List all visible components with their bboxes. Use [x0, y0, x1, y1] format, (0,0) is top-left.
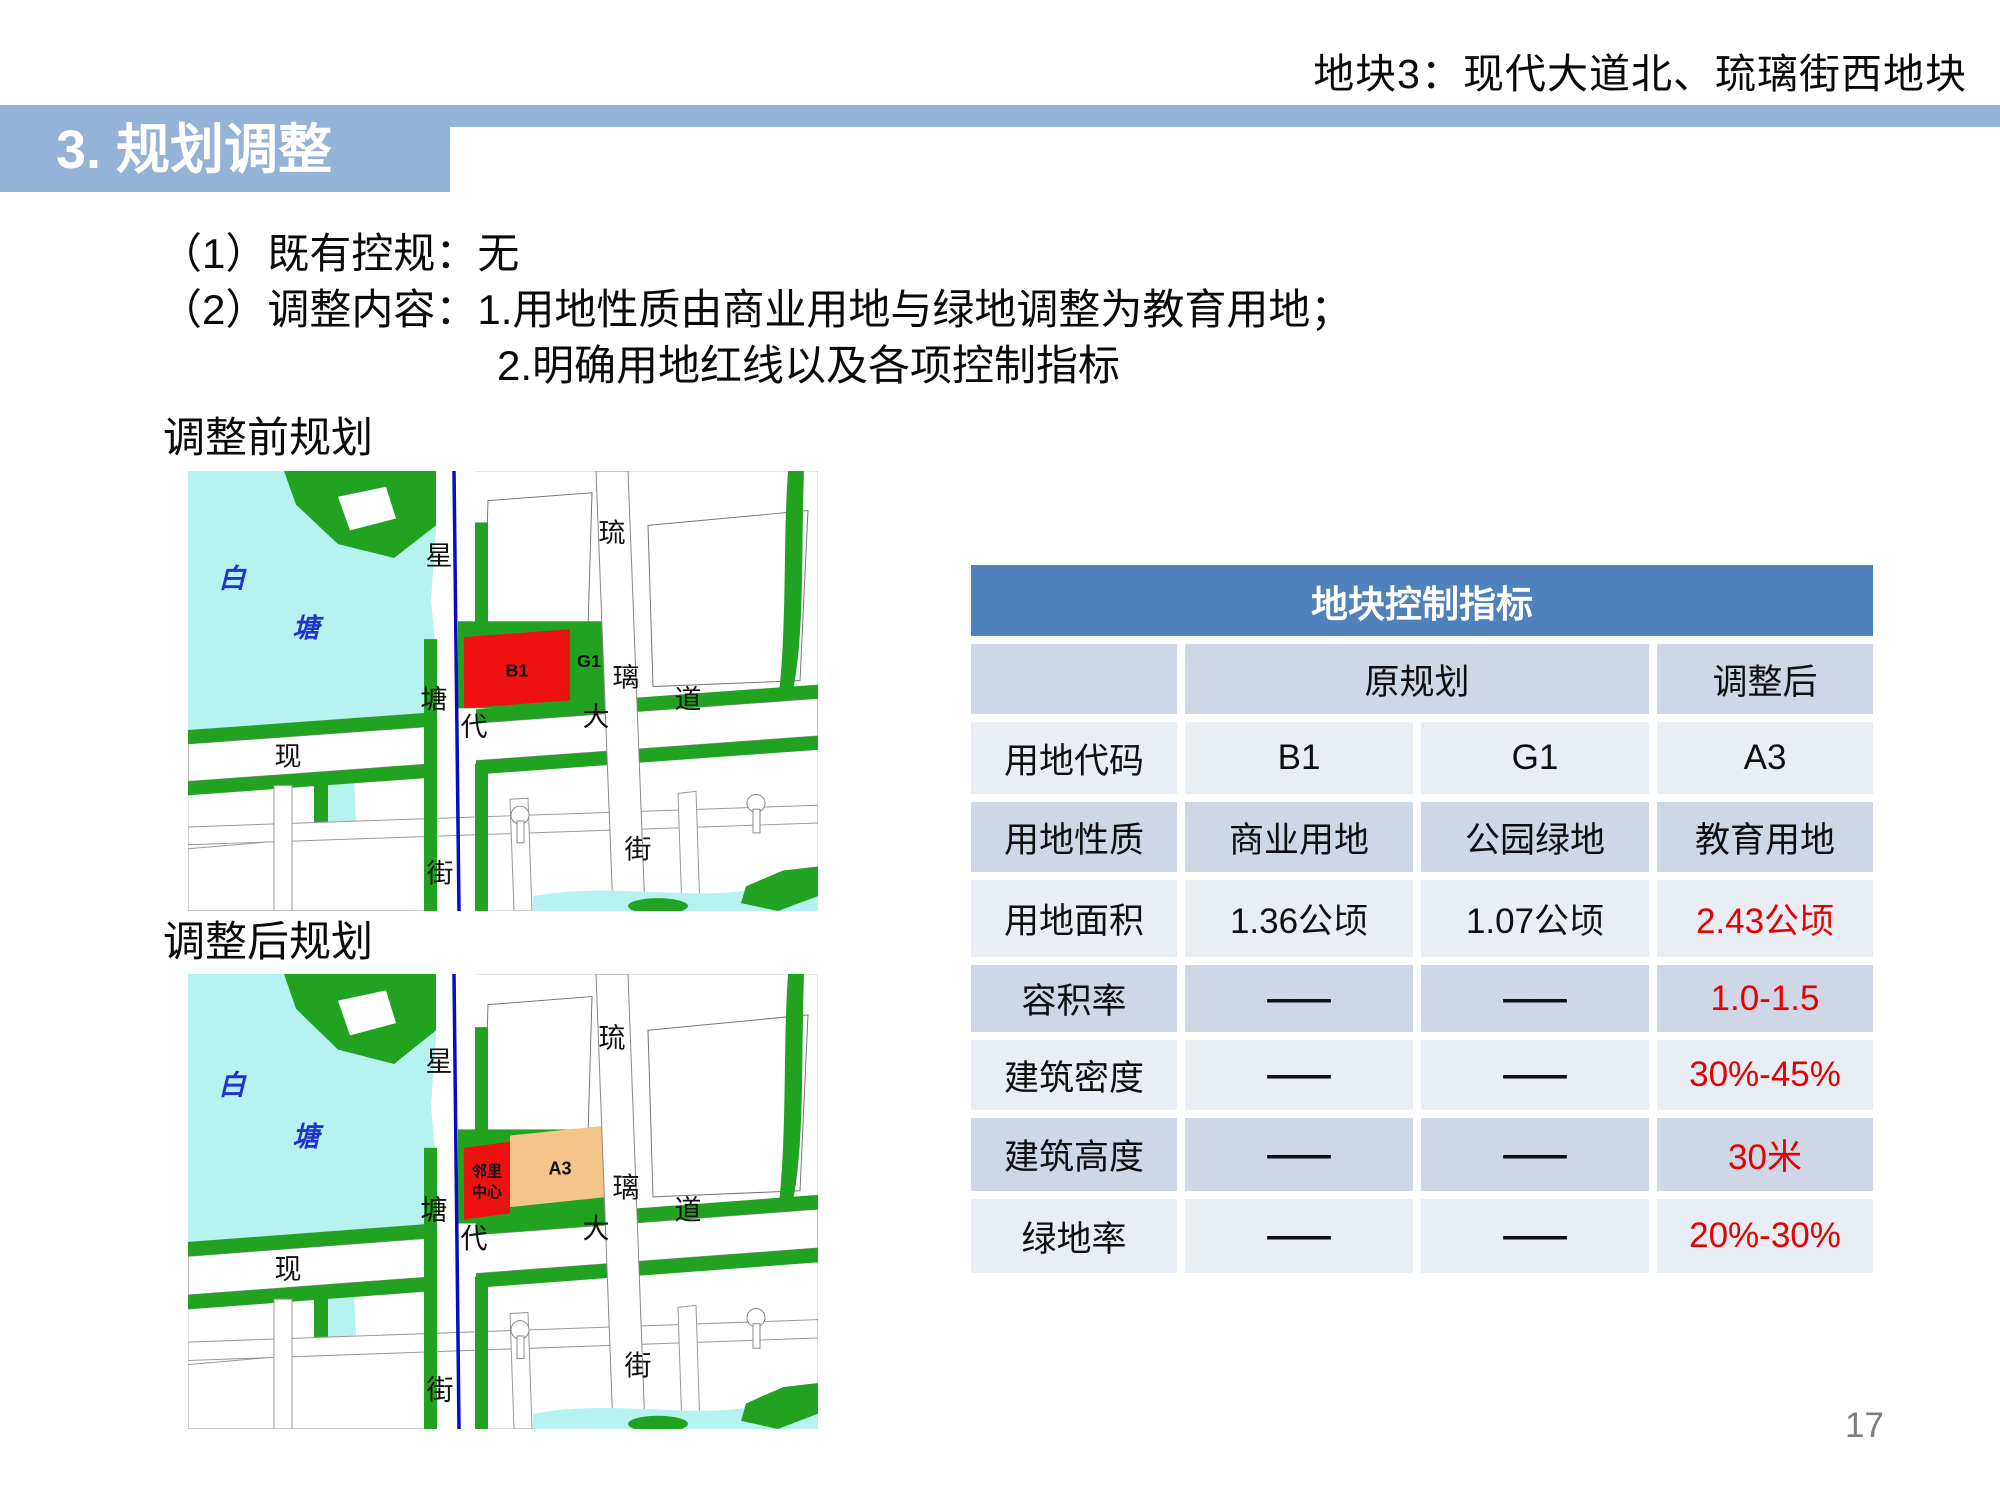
- table-cell: B1: [1185, 722, 1413, 794]
- table-cell: 建筑高度: [971, 1118, 1177, 1191]
- table-cell: 调整后: [1657, 644, 1873, 714]
- culdesac-2-stem: [753, 1324, 760, 1349]
- xiandai-label-3: 大: [583, 702, 610, 732]
- xingtang-green-right-top: [475, 522, 488, 637]
- parcel-b1-label: B1: [506, 661, 529, 681]
- table-cell: G1: [1421, 722, 1649, 794]
- liuli-label-2: 璃: [613, 1172, 640, 1203]
- table-cell: 绿地率: [971, 1199, 1177, 1273]
- xiandai-label-2: 代: [461, 712, 488, 742]
- slide: 地块3：现代大道北、琉璃街西地块 3. 规划调整 （1）既有控规：无 （2）调整…: [0, 0, 2000, 1500]
- control-table: 地块控制指标 原规划调整后用地代码B1G1A3用地性质商业用地公园绿地教育用地用…: [971, 565, 1873, 1281]
- lake-label-1: 白: [219, 1070, 248, 1100]
- table-cell: 公园绿地: [1421, 802, 1649, 872]
- xiandai-label-4: 道: [675, 1194, 702, 1225]
- table-cell: ——: [1185, 1040, 1413, 1110]
- table-cell: 1.36公顷: [1185, 880, 1413, 957]
- parcel-g1-label: G1: [577, 651, 601, 671]
- table-cell: ——: [1421, 1040, 1649, 1110]
- xingtang-label-3: 街: [427, 858, 454, 888]
- table-cell: 1.07公顷: [1421, 880, 1649, 957]
- xiandai-label-4: 道: [675, 684, 702, 714]
- table-row: 容积率————1.0-1.5: [971, 965, 1873, 1032]
- parcel-neighborhood: [464, 1142, 510, 1220]
- table-row: 建筑高度————30米: [971, 1118, 1873, 1191]
- liuli-label-3: 街: [625, 835, 652, 865]
- road-vertical-right: [678, 1305, 700, 1429]
- xingtang-green-right-bottom: [475, 764, 488, 911]
- table-row: 用地面积1.36公顷1.07公顷2.43公顷: [971, 880, 1873, 957]
- xingtang-label-3: 街: [427, 1374, 454, 1405]
- culdesac-1-stem: [517, 1336, 524, 1358]
- table-cell: 1.0-1.5: [1657, 965, 1873, 1032]
- road-vertical-left: [274, 785, 292, 911]
- table-cell: ——: [1185, 1199, 1413, 1273]
- table-cell: 商业用地: [1185, 802, 1413, 872]
- table-cell: 30米: [1657, 1118, 1873, 1191]
- road-vertical-left: [274, 1299, 292, 1429]
- table-cell: [971, 644, 1177, 714]
- table-cell: 用地性质: [971, 802, 1177, 872]
- block-top-mid: [484, 996, 592, 1141]
- table-cell: 容积率: [971, 965, 1177, 1032]
- table-cell: 用地面积: [971, 880, 1177, 957]
- table-cell: 教育用地: [1657, 802, 1873, 872]
- section-title-bar: 3. 规划调整: [0, 105, 450, 192]
- table-cell: 2.43公顷: [1657, 880, 1873, 957]
- xingtang-label-1: 星: [426, 541, 453, 571]
- culdesac-1-stem: [517, 821, 524, 843]
- section-title: 3. 规划调整: [0, 105, 450, 195]
- table-cell: 用地代码: [971, 722, 1177, 794]
- xingtang-green-right-top: [475, 1027, 488, 1146]
- map-after-svg: 白 塘 星 塘 街 现 代 大 道 琉 璃 街 邻里 中心 A3: [188, 974, 818, 1429]
- xiandai-label-1: 现: [275, 742, 302, 772]
- table-cell: A3: [1657, 722, 1873, 794]
- map-before-svg: 白 塘 星 塘 街 现 代 大 道 琉 璃 街 B1 G1: [188, 471, 818, 911]
- road-vertical-right: [678, 791, 700, 911]
- map-after-label: 调整后规划: [163, 908, 373, 969]
- table-cell: ——: [1185, 1118, 1413, 1191]
- lake-label-1: 白: [219, 564, 248, 594]
- xiandai-label-1: 现: [275, 1253, 302, 1284]
- xiandai-label-3: 大: [583, 1213, 610, 1244]
- body-line-1: （1）既有控规：无: [160, 226, 1352, 282]
- map-before-label: 调整前规划: [163, 404, 373, 465]
- liuli-label-2: 璃: [613, 663, 640, 693]
- block-top-mid: [484, 493, 592, 633]
- body-line-2: （2）调整内容：1.用地性质由商业用地与绿地调整为教育用地；: [160, 282, 1352, 338]
- table-cell: 原规划: [1185, 644, 1649, 714]
- liuli-label-1: 琉: [599, 518, 626, 548]
- map-after: 白 塘 星 塘 街 现 代 大 道 琉 璃 街 邻里 中心 A3: [188, 974, 818, 1429]
- parcel-a3-label: A3: [549, 1158, 572, 1178]
- table-cell: ——: [1421, 1199, 1649, 1273]
- xingtang-label-1: 星: [426, 1046, 453, 1077]
- parcel-neighborhood-label-1: 邻里: [471, 1162, 502, 1180]
- page-number: 17: [1845, 1406, 1884, 1446]
- table-row: 建筑密度————30%-45%: [971, 1040, 1873, 1110]
- xingtang-green-right-bottom: [475, 1277, 488, 1429]
- xingtang-label-2: 塘: [421, 1194, 448, 1225]
- table-rows: 原规划调整后用地代码B1G1A3用地性质商业用地公园绿地教育用地用地面积1.36…: [971, 644, 1873, 1273]
- xingtang-label-2: 塘: [421, 684, 448, 714]
- liuli-label-3: 街: [625, 1350, 652, 1381]
- culdesac-2-stem: [753, 809, 760, 833]
- table-cell: 20%-30%: [1657, 1199, 1873, 1273]
- table-cell: ——: [1185, 965, 1413, 1032]
- liuli-label-1: 琉: [599, 1022, 626, 1053]
- table-row: 绿地率————20%-30%: [971, 1199, 1873, 1273]
- map-before: 白 塘 星 塘 街 现 代 大 道 琉 璃 街 B1 G1: [188, 471, 818, 911]
- xiandai-label-2: 代: [461, 1223, 488, 1254]
- table-subheader-row: 原规划调整后: [971, 644, 1873, 714]
- table-row: 用地代码B1G1A3: [971, 722, 1873, 794]
- table-cell: ——: [1421, 1118, 1649, 1191]
- body-text: （1）既有控规：无 （2）调整内容：1.用地性质由商业用地与绿地调整为教育用地；…: [160, 226, 1352, 394]
- parcel-neighborhood-label-2: 中心: [472, 1183, 502, 1201]
- table-row: 用地性质商业用地公园绿地教育用地: [971, 802, 1873, 872]
- table-cell: ——: [1421, 965, 1649, 1032]
- slide-header-title: 地块3：现代大道北、琉璃街西地块: [1313, 40, 1967, 100]
- table-cell: 30%-45%: [1657, 1040, 1873, 1110]
- body-line-3: 2.明确用地红线以及各项控制指标: [497, 338, 1352, 394]
- table-title: 地块控制指标: [971, 565, 1873, 636]
- lake-label-2: 塘: [293, 1122, 325, 1152]
- table-cell: 建筑密度: [971, 1040, 1177, 1110]
